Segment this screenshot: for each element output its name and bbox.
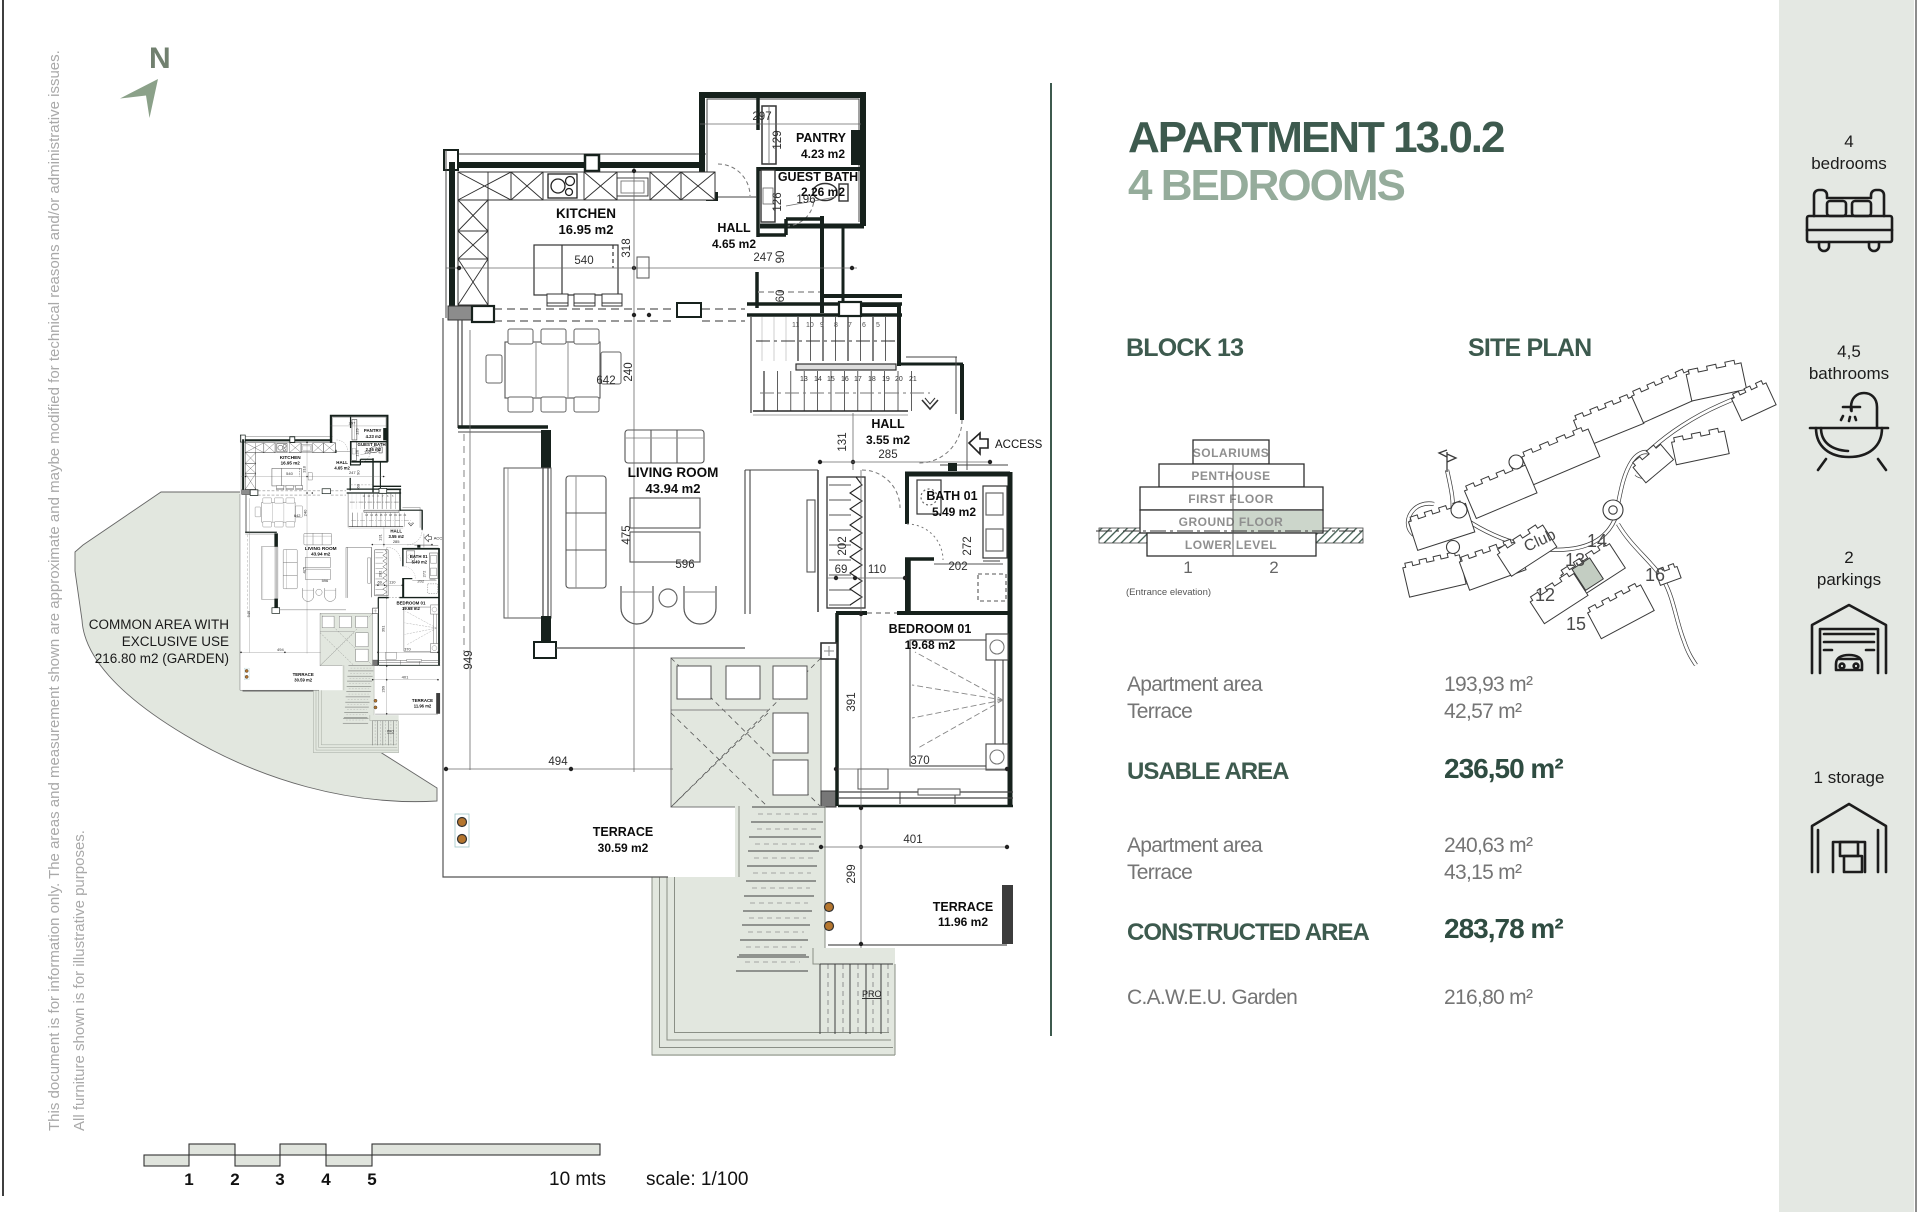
svg-text:BATH 01: BATH 01 [926, 489, 977, 503]
svg-text:GUEST BATH: GUEST BATH [778, 170, 858, 184]
svg-text:247: 247 [753, 252, 772, 264]
svg-text:15: 15 [1566, 614, 1586, 634]
svg-text:13: 13 [1565, 550, 1585, 570]
svg-text:FIRST FLOOR: FIRST FLOOR [1188, 492, 1274, 506]
svg-text:11: 11 [792, 322, 799, 329]
svg-text:285: 285 [878, 449, 897, 461]
svg-text:19: 19 [882, 376, 890, 383]
svg-text:5: 5 [876, 322, 880, 329]
svg-text:9: 9 [820, 322, 824, 329]
svg-text:TERRACE: TERRACE [933, 900, 993, 914]
svg-text:16.95 m2: 16.95 m2 [559, 222, 614, 237]
svg-text:1 storage: 1 storage [1814, 768, 1885, 787]
svg-text:202: 202 [948, 561, 967, 573]
svg-text:494: 494 [548, 756, 568, 768]
svg-text:PENTHOUSE: PENTHOUSE [1191, 469, 1270, 483]
svg-text:4: 4 [1844, 132, 1853, 151]
svg-text:299: 299 [846, 864, 858, 883]
svg-text:642: 642 [596, 375, 615, 387]
svg-text:16: 16 [841, 376, 849, 383]
svg-text:11.96 m2: 11.96 m2 [938, 915, 988, 929]
svg-text:60: 60 [775, 290, 787, 303]
svg-text:90: 90 [775, 251, 787, 264]
svg-text:30.59 m2: 30.59 m2 [598, 841, 649, 855]
svg-text:19.68 m2: 19.68 m2 [905, 638, 956, 652]
svg-text:KITCHEN: KITCHEN [556, 206, 616, 221]
svg-text:4: 4 [321, 1170, 331, 1189]
svg-text:13: 13 [800, 376, 808, 383]
svg-text:ACCESS: ACCESS [995, 439, 1043, 451]
svg-text:GROUND FLOOR: GROUND FLOOR [1179, 515, 1284, 529]
svg-text:COMMON AREA WITH: COMMON AREA WITH [89, 617, 229, 632]
svg-text:272: 272 [962, 536, 974, 555]
svg-text:401: 401 [903, 834, 922, 846]
svg-text:SOLARIUMS: SOLARIUMS [1193, 446, 1270, 460]
svg-text:475: 475 [621, 525, 633, 544]
svg-text:2: 2 [1269, 558, 1278, 577]
svg-text:15: 15 [827, 376, 835, 383]
svg-text:PRO: PRO [862, 989, 882, 999]
svg-text:4.65 m2: 4.65 m2 [712, 237, 756, 251]
svg-text:43.94 m2: 43.94 m2 [646, 481, 701, 496]
svg-text:17: 17 [854, 376, 862, 383]
svg-text:bedrooms: bedrooms [1811, 154, 1887, 173]
svg-text:4,5: 4,5 [1837, 342, 1861, 361]
svg-text:5.49 m2: 5.49 m2 [932, 505, 976, 519]
svg-text:540: 540 [574, 255, 593, 267]
svg-text:EXCLUSIVE USE: EXCLUSIVE USE [122, 634, 229, 649]
svg-text:8: 8 [834, 322, 838, 329]
svg-text:3.55 m2: 3.55 m2 [866, 433, 910, 447]
svg-text:391: 391 [846, 692, 858, 711]
svg-text:129: 129 [772, 130, 784, 149]
svg-text:5: 5 [367, 1170, 376, 1189]
svg-text:297: 297 [752, 111, 771, 123]
svg-text:318: 318 [621, 238, 633, 257]
svg-text:1: 1 [1183, 558, 1192, 577]
svg-text:126: 126 [772, 192, 784, 211]
svg-text:HALL: HALL [871, 417, 905, 431]
svg-text:131: 131 [837, 432, 849, 451]
svg-text:216.80 m2 (GARDEN): 216.80 m2 (GARDEN) [95, 651, 229, 666]
svg-text:2.26 m2: 2.26 m2 [801, 185, 845, 199]
svg-text:16: 16 [1645, 565, 1665, 585]
svg-text:20: 20 [895, 376, 903, 383]
svg-text:6: 6 [862, 322, 866, 329]
svg-text:scale: 1/100: scale: 1/100 [646, 1169, 748, 1190]
svg-text:3: 3 [275, 1170, 284, 1189]
svg-text:BEDROOM 01: BEDROOM 01 [889, 622, 972, 636]
svg-text:14: 14 [814, 376, 822, 383]
svg-text:12: 12 [1535, 585, 1555, 605]
svg-text:TERRACE: TERRACE [593, 825, 653, 839]
svg-text:21: 21 [909, 376, 917, 383]
svg-text:PANTRY: PANTRY [796, 131, 847, 145]
svg-text:LOWER LEVEL: LOWER LEVEL [1185, 538, 1277, 552]
svg-text:69: 69 [835, 564, 848, 576]
svg-text:596: 596 [675, 559, 694, 571]
svg-text:14: 14 [1587, 531, 1607, 551]
svg-text:4.23 m2: 4.23 m2 [801, 147, 845, 161]
svg-text:10: 10 [806, 322, 814, 329]
svg-text:240: 240 [623, 362, 635, 381]
svg-text:370: 370 [910, 755, 929, 767]
svg-text:(Entrance elevation): (Entrance elevation) [1126, 587, 1211, 598]
svg-text:parkings: parkings [1817, 570, 1881, 589]
svg-text:LIVING ROOM: LIVING ROOM [628, 465, 719, 480]
svg-text:949: 949 [463, 650, 475, 669]
svg-text:10 mts: 10 mts [549, 1169, 606, 1190]
svg-text:2: 2 [230, 1170, 239, 1189]
svg-text:bathrooms: bathrooms [1809, 364, 1889, 383]
svg-text:18: 18 [868, 376, 876, 383]
svg-text:202: 202 [837, 536, 849, 555]
svg-text:1: 1 [184, 1170, 193, 1189]
svg-text:2: 2 [1844, 548, 1853, 567]
svg-text:7: 7 [848, 322, 852, 329]
svg-text:110: 110 [868, 564, 886, 576]
svg-text:HALL: HALL [717, 221, 751, 235]
svg-text:N: N [149, 42, 171, 75]
